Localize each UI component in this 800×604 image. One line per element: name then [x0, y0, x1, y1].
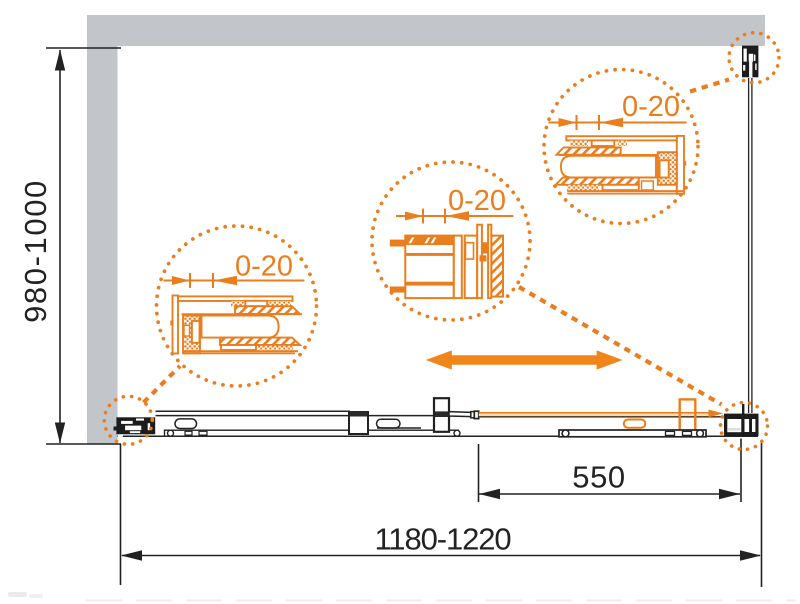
svg-text:550: 550 — [572, 460, 626, 495]
svg-text:1180-1220: 1180-1220 — [374, 522, 511, 557]
svg-text:0-20: 0-20 — [622, 91, 680, 123]
svg-text:0-20: 0-20 — [448, 185, 506, 217]
svg-text:0-20: 0-20 — [235, 251, 293, 283]
svg-text:980-1000: 980-1000 — [18, 179, 53, 323]
